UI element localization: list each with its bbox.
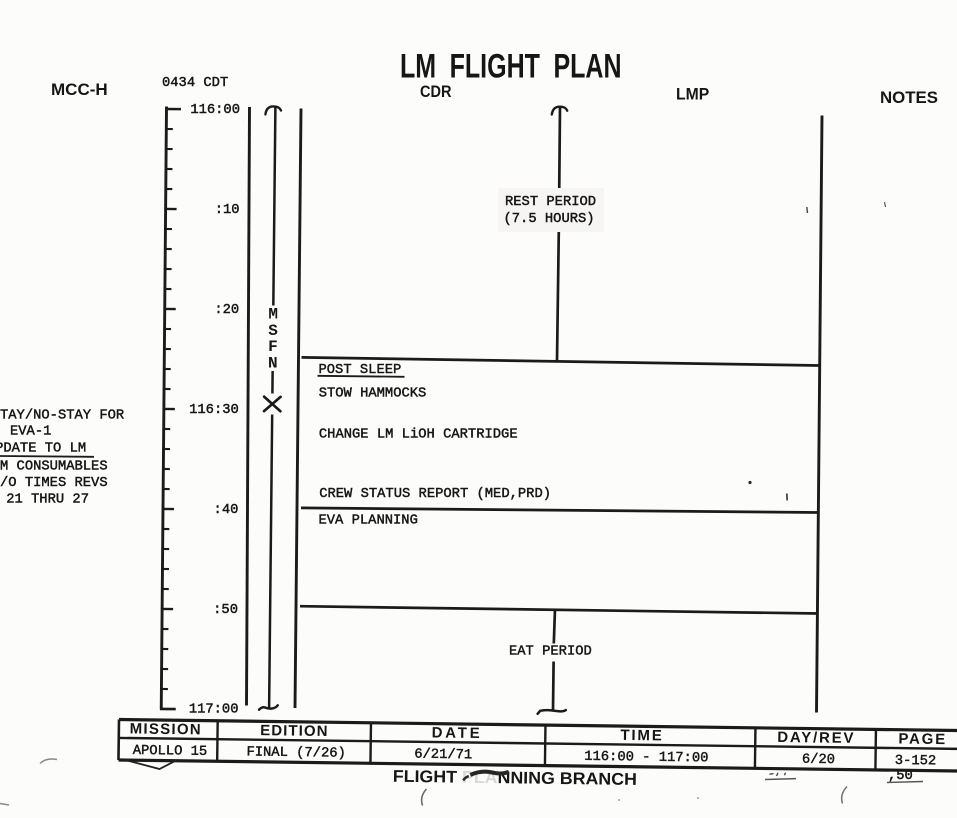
svg-text:TIME: TIME (620, 727, 662, 745)
svg-text:DAY/REV: DAY/REV (777, 729, 853, 747)
svg-text:STOW HAMMOCKS: STOW HAMMOCKS (319, 387, 427, 402)
svg-text:F: F (268, 338, 278, 356)
svg-text:M: M (268, 305, 278, 323)
svg-text:MCC-H: MCC-H (51, 80, 108, 99)
svg-text:CREW STATUS REPORT (MED,PRD): CREW STATUS REPORT (MED,PRD) (319, 486, 551, 502)
svg-text:FINAL (7/26): FINAL (7/26) (246, 744, 346, 761)
svg-text::10: :10 (215, 203, 240, 218)
svg-text:T/O TIMES REVS: T/O TIMES REVS (0, 475, 108, 491)
svg-text:0434 CDT: 0434 CDT (162, 76, 228, 91)
svg-text::40: :40 (214, 503, 239, 518)
svg-text:EVA-1: EVA-1 (10, 425, 51, 440)
svg-text:FLIGHT PLANNING BRANCH: FLIGHT PLANNING BRANCH (393, 767, 637, 789)
svg-text:UPDATE TO LM: UPDATE TO LM (0, 441, 86, 456)
svg-text:EVA PLANNING: EVA PLANNING (319, 514, 418, 529)
svg-text:DATE: DATE (432, 724, 480, 742)
svg-text:STAY/NO-STAY FOR: STAY/NO-STAY FOR (0, 407, 124, 423)
svg-text:EDITION: EDITION (260, 722, 328, 740)
svg-text::50: :50 (213, 603, 238, 618)
svg-text:NOTES: NOTES (880, 88, 938, 107)
svg-text:REST PERIOD: REST PERIOD (505, 195, 596, 210)
svg-text:(7.5 HOURS): (7.5 HOURS) (504, 211, 595, 227)
svg-text:LM FLIGHT PLAN: LM FLIGHT PLAN (400, 48, 622, 86)
svg-text:6/21/71: 6/21/71 (414, 747, 472, 764)
svg-text:CHANGE LM LiOH CARTRIDGE: CHANGE LM LiOH CARTRIDGE (319, 427, 518, 443)
svg-text::20: :20 (214, 303, 239, 318)
svg-text:LM CONSUMABLES: LM CONSUMABLES (0, 460, 108, 475)
svg-text:MISSION: MISSION (130, 720, 201, 738)
svg-text:EAT PERIOD: EAT PERIOD (509, 645, 592, 660)
svg-text:CDR: CDR (420, 83, 452, 101)
svg-text:116:00 - 117:00: 116:00 - 117:00 (584, 750, 708, 767)
svg-text:LMP: LMP (676, 86, 709, 104)
svg-text:116:30: 116:30 (189, 403, 239, 418)
svg-text:PAGE: PAGE (898, 731, 945, 749)
svg-text:APOLLO 15: APOLLO 15 (133, 744, 208, 760)
svg-text:116:00: 116:00 (190, 103, 240, 118)
svg-text:21 THRU 27: 21 THRU 27 (6, 493, 89, 508)
svg-text:N: N (268, 355, 278, 373)
svg-text:6/20: 6/20 (802, 752, 835, 768)
svg-text:117:00: 117:00 (189, 702, 239, 717)
svg-text:3-152: 3-152 (895, 754, 937, 770)
